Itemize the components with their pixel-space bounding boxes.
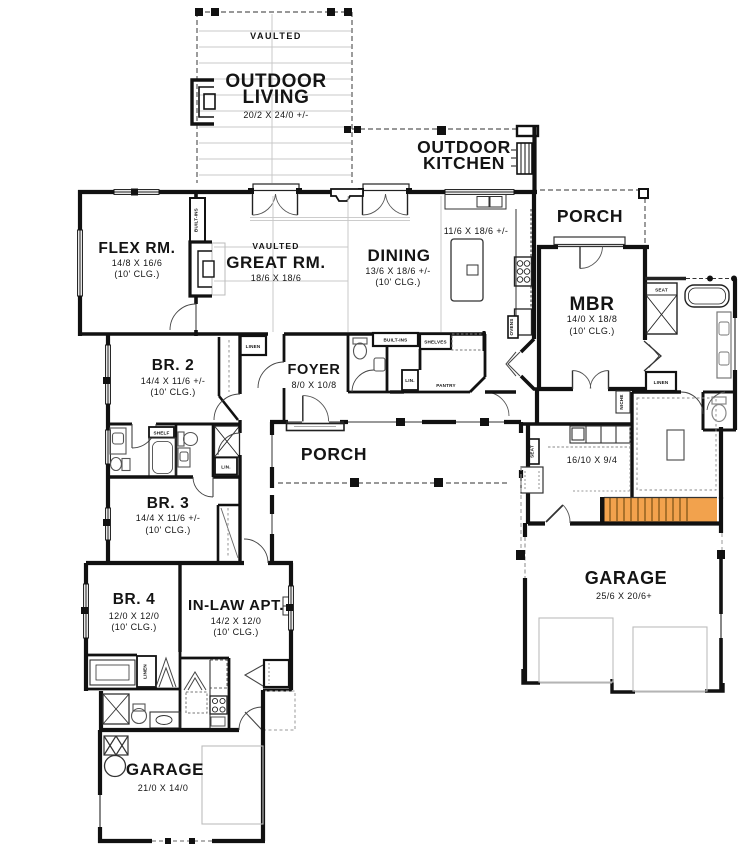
svg-text:14/8 X 16/6: 14/8 X 16/6	[112, 258, 162, 268]
svg-text:14/0 X 18/8: 14/0 X 18/8	[567, 314, 617, 324]
svg-text:SEAT: SEAT	[655, 288, 668, 293]
svg-text:VAULTED: VAULTED	[252, 241, 299, 251]
svg-text:PORCH: PORCH	[557, 206, 623, 226]
svg-text:14/4 X 11/6 +/-: 14/4 X 11/6 +/-	[141, 376, 206, 386]
svg-text:8/0 X 10/8: 8/0 X 10/8	[291, 380, 336, 390]
svg-text:25/6 X 20/6+: 25/6 X 20/6+	[596, 591, 652, 601]
svg-text:(10' CLG.): (10' CLG.)	[114, 269, 159, 279]
svg-text:13/6 X 18/6 +/-: 13/6 X 18/6 +/-	[365, 266, 430, 276]
svg-text:14/4 X 11/6 +/-: 14/4 X 11/6 +/-	[136, 513, 201, 523]
svg-text:VAULTED: VAULTED	[250, 31, 302, 41]
svg-text:LINEN: LINEN	[246, 344, 261, 349]
svg-text:PORCH: PORCH	[301, 444, 367, 464]
svg-text:20/2 X 24/0 +/-: 20/2 X 24/0 +/-	[243, 110, 308, 120]
svg-text:LINEN: LINEN	[143, 664, 148, 679]
svg-text:FOYER: FOYER	[288, 362, 341, 378]
svg-text:BR. 4: BR. 4	[113, 591, 156, 608]
svg-text:LIN.: LIN.	[405, 378, 414, 383]
svg-text:PANTRY: PANTRY	[436, 383, 456, 388]
svg-text:NICHE: NICHE	[619, 394, 624, 409]
svg-text:(10' CLG.): (10' CLG.)	[150, 387, 195, 397]
svg-text:DINING: DINING	[367, 246, 430, 265]
svg-text:(10' CLG.): (10' CLG.)	[569, 326, 614, 336]
svg-text:GARAGE: GARAGE	[585, 568, 668, 588]
svg-text:(10' CLG.): (10' CLG.)	[213, 627, 258, 637]
svg-text:12/0 X 12/0: 12/0 X 12/0	[109, 611, 159, 621]
svg-text:LIVING: LIVING	[243, 87, 310, 108]
svg-text:SEAT: SEAT	[530, 445, 535, 458]
svg-text:IN-LAW APT.: IN-LAW APT.	[188, 597, 284, 614]
svg-text:KITCHEN: KITCHEN	[423, 153, 505, 173]
svg-text:LIN.: LIN.	[221, 465, 230, 470]
svg-text:SHELVES: SHELVES	[424, 340, 447, 345]
svg-text:BR. 3: BR. 3	[147, 495, 190, 512]
svg-text:BUILT-INS: BUILT-INS	[384, 338, 408, 343]
svg-text:MBR: MBR	[569, 294, 614, 315]
svg-text:GREAT RM.: GREAT RM.	[226, 253, 326, 272]
svg-text:BUILT-INS: BUILT-INS	[194, 208, 199, 232]
svg-text:BR. 2: BR. 2	[152, 357, 195, 374]
svg-text:(10' CLG.): (10' CLG.)	[375, 277, 420, 287]
svg-text:11/6 X 18/6 +/-: 11/6 X 18/6 +/-	[444, 226, 509, 236]
svg-text:OVENS: OVENS	[509, 318, 514, 335]
svg-text:SHELF: SHELF	[153, 431, 169, 436]
svg-text:LINEN: LINEN	[654, 380, 669, 385]
svg-text:(10' CLG.): (10' CLG.)	[145, 525, 190, 535]
svg-text:18/6 X 18/6: 18/6 X 18/6	[251, 273, 301, 283]
svg-text:14/2 X 12/0: 14/2 X 12/0	[211, 616, 261, 626]
svg-text:FLEX RM.: FLEX RM.	[98, 240, 175, 257]
svg-text:21/0 X 14/0: 21/0 X 14/0	[138, 783, 188, 793]
svg-text:(10' CLG.): (10' CLG.)	[111, 622, 156, 632]
svg-text:GARAGE: GARAGE	[126, 760, 204, 779]
svg-text:16/10 X 9/4: 16/10 X 9/4	[567, 455, 617, 465]
